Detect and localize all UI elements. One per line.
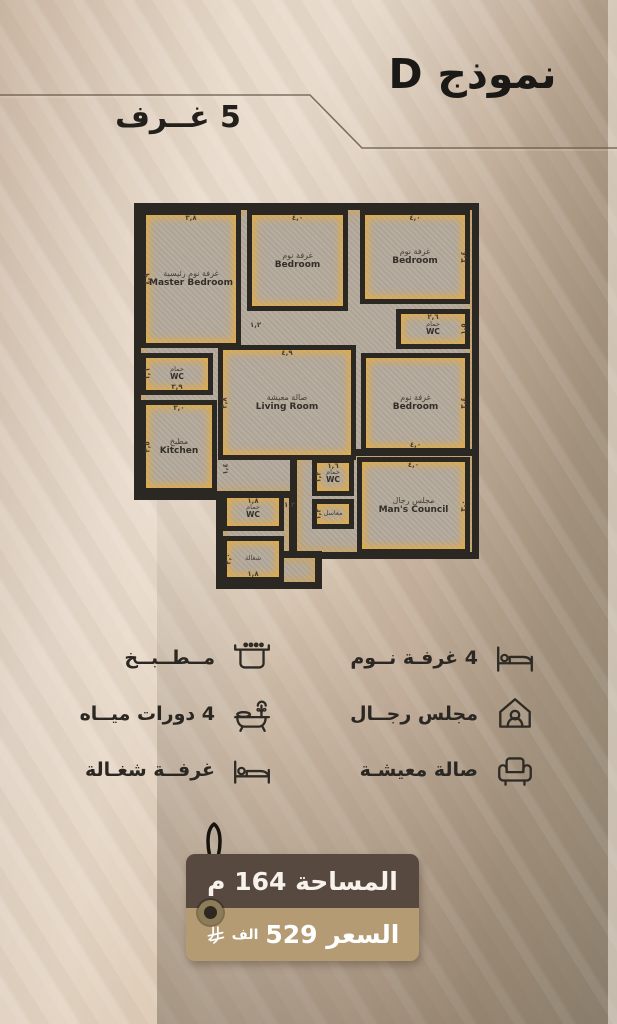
room-name-en: Man's Council (379, 505, 449, 515)
room-name-en: WC (326, 476, 340, 485)
legend-item-maid-room: غرفــة شغـالة (48, 748, 273, 792)
dimension-label: ٣,٨ (185, 214, 196, 222)
maid-bed-icon (231, 749, 273, 791)
page-title: نموذج D (360, 50, 585, 98)
bed-icon (494, 637, 536, 679)
hall-dimension-label: ١,٢ (250, 321, 261, 329)
room-mans-council: ٤,٠ ٣,٠ مجلس رجال Man's Council (357, 457, 470, 554)
area-text: المساحة 164 م (207, 867, 398, 896)
dimension-label: ٤,٩ (144, 273, 152, 284)
room-name-ar: غرفة نوم رئيسية (149, 269, 233, 278)
room-name-ar: مجلس رجال (379, 496, 449, 505)
dimension-label: ٣,٠ (459, 500, 467, 511)
legend-item-bedrooms: 4 غرفـة نــوم (328, 636, 536, 680)
legend-label: 4 دورات ميــاه (80, 703, 215, 725)
dimension-label: ١,٦ (144, 368, 152, 379)
legend-label: صالة معيشـة (360, 759, 478, 781)
price-unit-text: الف (232, 927, 259, 943)
room-bedroom-2: ٤,٠ غرفة نوم Bedroom (247, 210, 348, 311)
majlis-icon (494, 693, 536, 735)
room-name-en: Living Room (256, 402, 318, 412)
dimension-label: ٣,٤ (459, 397, 467, 408)
dimension-label: ٤,٠ (408, 461, 419, 469)
legend-column-right: 4 غرفـة نــوم مجلس رجــال (328, 636, 536, 804)
room-name-ar: مغاسل (324, 510, 343, 517)
dimension-label: ٣,٥ (144, 441, 152, 452)
bathtub-icon (231, 693, 273, 735)
dimension-label: ٤,٠ (292, 214, 303, 222)
legend-label: مــطــبــخ (124, 647, 215, 669)
room-maid-room: ٢,٠ ١,٨ شغالة (222, 536, 284, 582)
rooms-count-badge: 5 غــرف (88, 100, 268, 135)
dimension-label: ٣,٤ (459, 251, 467, 262)
legend-item-bathrooms: 4 دورات ميــاه (48, 692, 273, 736)
room-kitchen: ٣,٠ ٣,٥ مطبخ Kitchen (141, 400, 217, 493)
room-name-ar: صالة معيشة (256, 393, 318, 402)
floor-plan: ٣,٨ ٤,٩ غرفة نوم رئيسية Master Bedroom ٤… (134, 203, 482, 593)
room-name-ar: غرفة نوم (392, 247, 438, 256)
room-living-room: ٤,٩ ٣,٨ صالة معيشة Living Room (218, 345, 356, 460)
room-name-en: Bedroom (275, 260, 321, 270)
room-name-en: Kitchen (160, 446, 199, 456)
room-name-en: Bedroom (392, 256, 438, 266)
dimension-label: ٣,٨ (221, 397, 229, 408)
legend-item-mens-council: مجلس رجــال (328, 692, 536, 736)
poster-page: نموذج D 5 غــرف ٣,٨ ٤,٩ غرفة نوم رئيسية … (0, 0, 617, 1024)
dimension-label: ١,٣ (315, 471, 323, 482)
tag-grommet (198, 900, 223, 925)
dimension-label: ١,٢ (315, 508, 323, 519)
legend-label: غرفــة شغـالة (85, 759, 215, 781)
dimension-label: ٤,٩ (281, 349, 292, 357)
dimension-label: ٣,٠ (173, 404, 184, 412)
legend-column-left: مــطــبــخ 4 دورات ميــاه (48, 636, 273, 804)
riyal-symbol-icon (206, 925, 225, 945)
room-name-en: Bedroom (393, 402, 439, 412)
room-name-en: WC (426, 328, 440, 337)
dimension-label: ١,٨ (247, 497, 258, 505)
room-name-ar: مطبخ (160, 437, 199, 446)
legend-item-kitchen: مــطــبــخ (48, 636, 273, 680)
dimension-label: ١,٨ (247, 570, 258, 578)
dimension-label: ٤,٠ (410, 441, 421, 449)
hall-dimension-label: ١,٤ (222, 463, 230, 474)
hall-dimension-label: ١,٣ (284, 501, 295, 509)
room-bedroom-3: ٤,٠ ٣,٤ غرفة نوم Bedroom (360, 210, 470, 304)
stove-icon (231, 637, 273, 679)
legend-label: مجلس رجــال (350, 703, 478, 725)
legend-item-living-room: صالة معيشـة (328, 748, 536, 792)
room-name-en: WC (170, 373, 184, 382)
armchair-icon (494, 749, 536, 791)
legend-label: 4 غرفـة نــوم (350, 647, 478, 669)
dimension-label: ١,٥ (459, 323, 467, 334)
room-bedroom-4: ٣,٤ ٤,٠ غرفة نوم Bedroom (361, 353, 470, 453)
dimension-label: ٤,٠ (409, 214, 420, 222)
room-wc-bottom-left: ١,٨ حمام WC (222, 493, 284, 531)
area-row: المساحة 164 م (186, 854, 419, 908)
room-master-bedroom: ٣,٨ ٤,٩ غرفة نوم رئيسية Master Bedroom (141, 210, 241, 348)
room-name-ar: غرفة نوم (393, 393, 439, 402)
room-name-ar: شغالة (245, 555, 261, 562)
dimension-label: ١,٦ (327, 462, 338, 470)
dimension-label: ٢,٦ (427, 313, 438, 321)
room-wc-middle: ١,٦ ١,٣ حمام WC (312, 458, 354, 496)
price-tag-body: المساحة 164 م السعر 529 الف (186, 854, 419, 961)
room-name-ar: غرفة نوم (275, 251, 321, 260)
room-wc-right: ٢,٦ ١,٥ حمام WC (396, 309, 470, 349)
room-name-en: Master Bedroom (149, 278, 233, 288)
room-name-en: WC (246, 511, 260, 520)
price-text: السعر 529 (265, 920, 399, 949)
room-wash-area: ١,٢ مغاسل (312, 499, 354, 529)
dimension-label: ٣,٩ (171, 383, 182, 391)
dimension-label: ٢,٠ (225, 553, 233, 564)
room-wc-left: ١,٦ ٣,٩ حمام WC (141, 353, 213, 395)
